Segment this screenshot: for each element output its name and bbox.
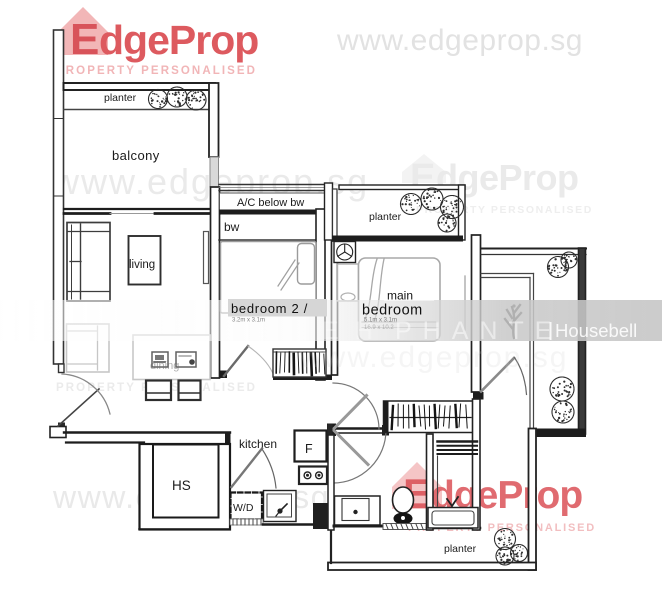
svg-text:bedroom: bedroom	[362, 303, 423, 319]
svg-text:3.2m x 3.1m: 3.2m x 3.1m	[232, 318, 265, 324]
svg-text:F: F	[305, 442, 313, 456]
svg-text:bedroom 2 /: bedroom 2 /	[231, 301, 308, 316]
svg-text:dgeProp: dgeProp	[436, 157, 579, 198]
svg-text:www.edgeprop.sg: www.edgeprop.sg	[336, 24, 583, 57]
svg-text:planter: planter	[369, 211, 402, 223]
svg-text:5.1m x 3.1m: 5.1m x 3.1m	[364, 318, 397, 324]
svg-text:planter: planter	[444, 543, 477, 555]
svg-text:dgeProp: dgeProp	[99, 17, 258, 63]
svg-text:PROPERTY PERSONALISED: PROPERTY PERSONALISED	[56, 65, 257, 77]
svg-text:E: E	[70, 15, 98, 64]
svg-text:W/D: W/D	[233, 502, 254, 514]
svg-text:A/C below bw: A/C below bw	[237, 197, 304, 209]
svg-text:balcony: balcony	[112, 148, 160, 163]
svg-text:kitchen: kitchen	[239, 437, 277, 451]
svg-text:E: E	[410, 157, 434, 199]
svg-text:Housebell: Housebell	[555, 320, 637, 341]
svg-text:HS: HS	[172, 478, 191, 493]
svg-text:main: main	[387, 289, 413, 303]
svg-text:dining: dining	[150, 360, 179, 372]
svg-text:bw: bw	[224, 220, 240, 234]
svg-text:www.edgeprop.sg: www.edgeprop.sg	[299, 341, 568, 374]
svg-text:planter: planter	[104, 92, 137, 104]
svg-text:16.9 x 10.2: 16.9 x 10.2	[364, 325, 394, 331]
svg-text:living: living	[129, 259, 155, 271]
